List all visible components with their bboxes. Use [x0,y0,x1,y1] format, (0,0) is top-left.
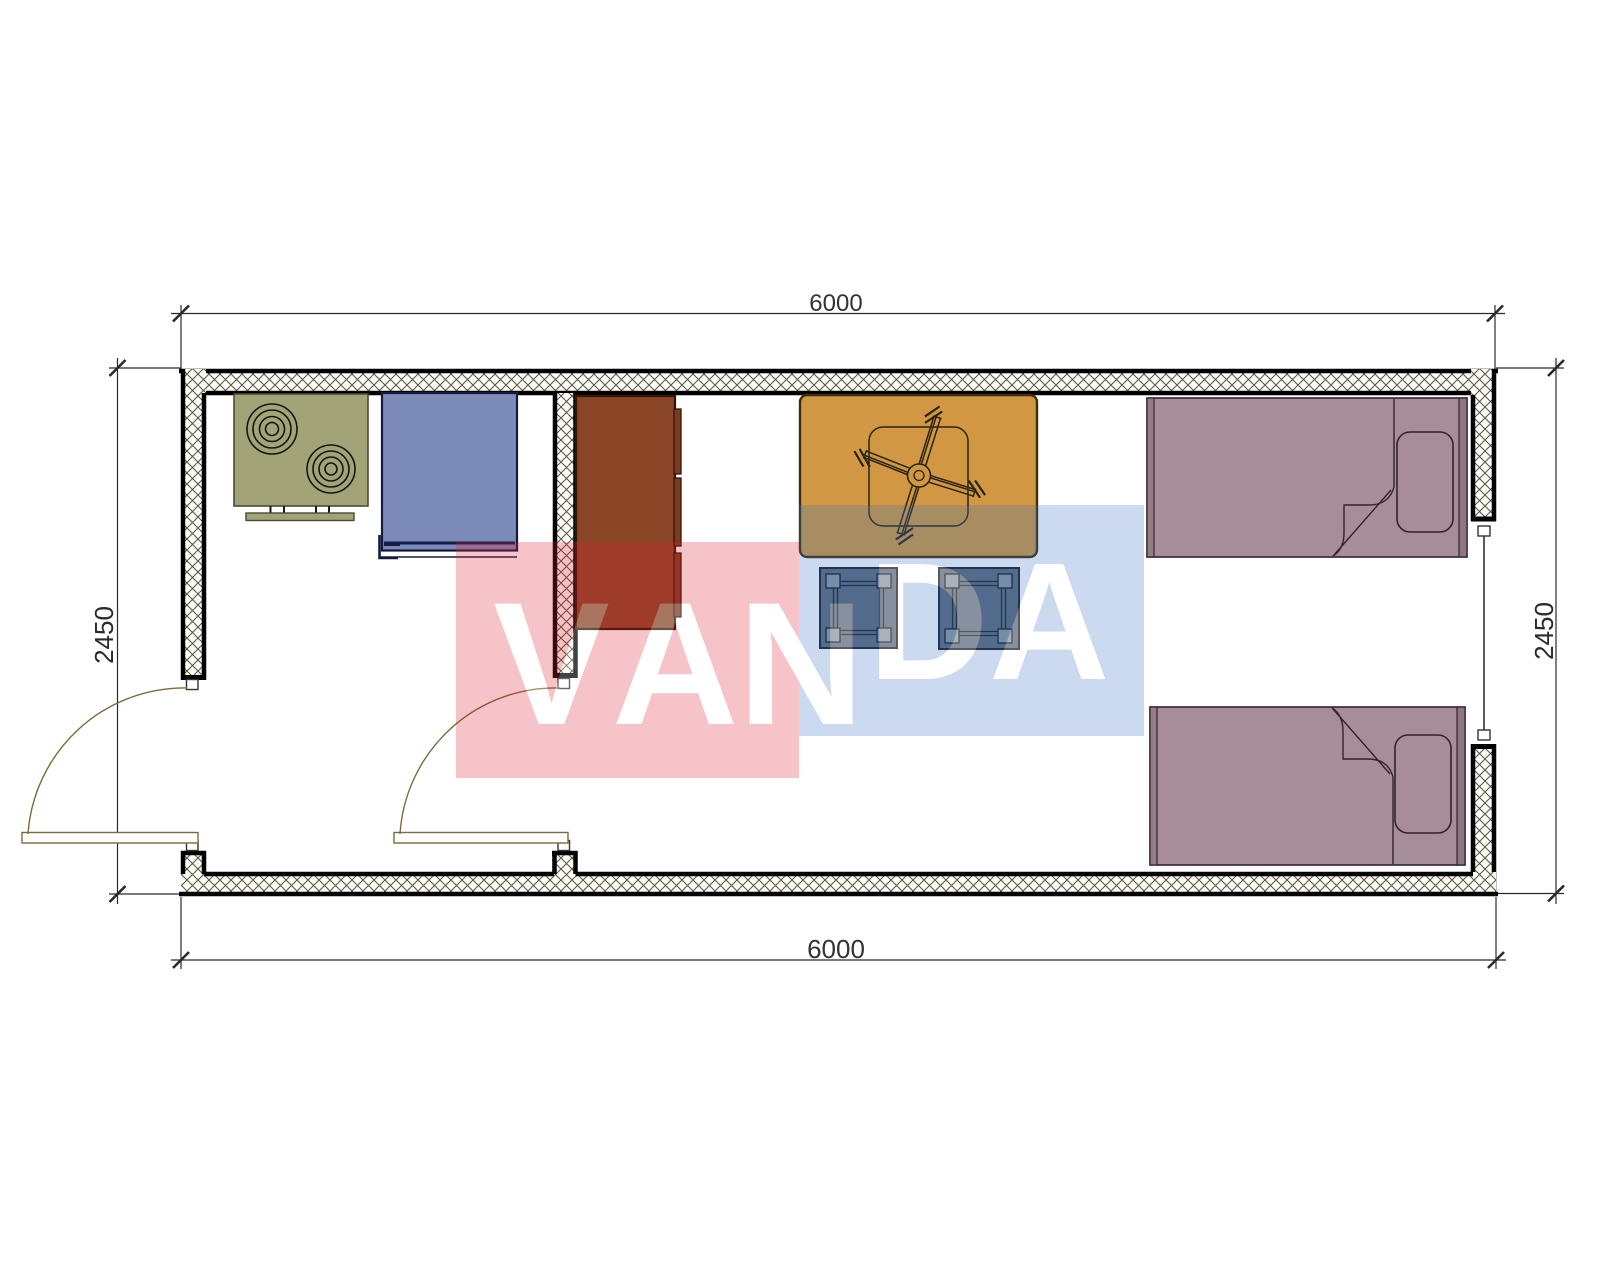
svg-text:DA: DA [868,529,1110,715]
svg-text:6000: 6000 [809,290,862,317]
svg-text:VAN: VAN [493,567,864,762]
svg-text:6000: 6000 [807,934,865,964]
svg-text:2450: 2450 [89,606,119,664]
svg-text:2450: 2450 [1529,602,1559,660]
